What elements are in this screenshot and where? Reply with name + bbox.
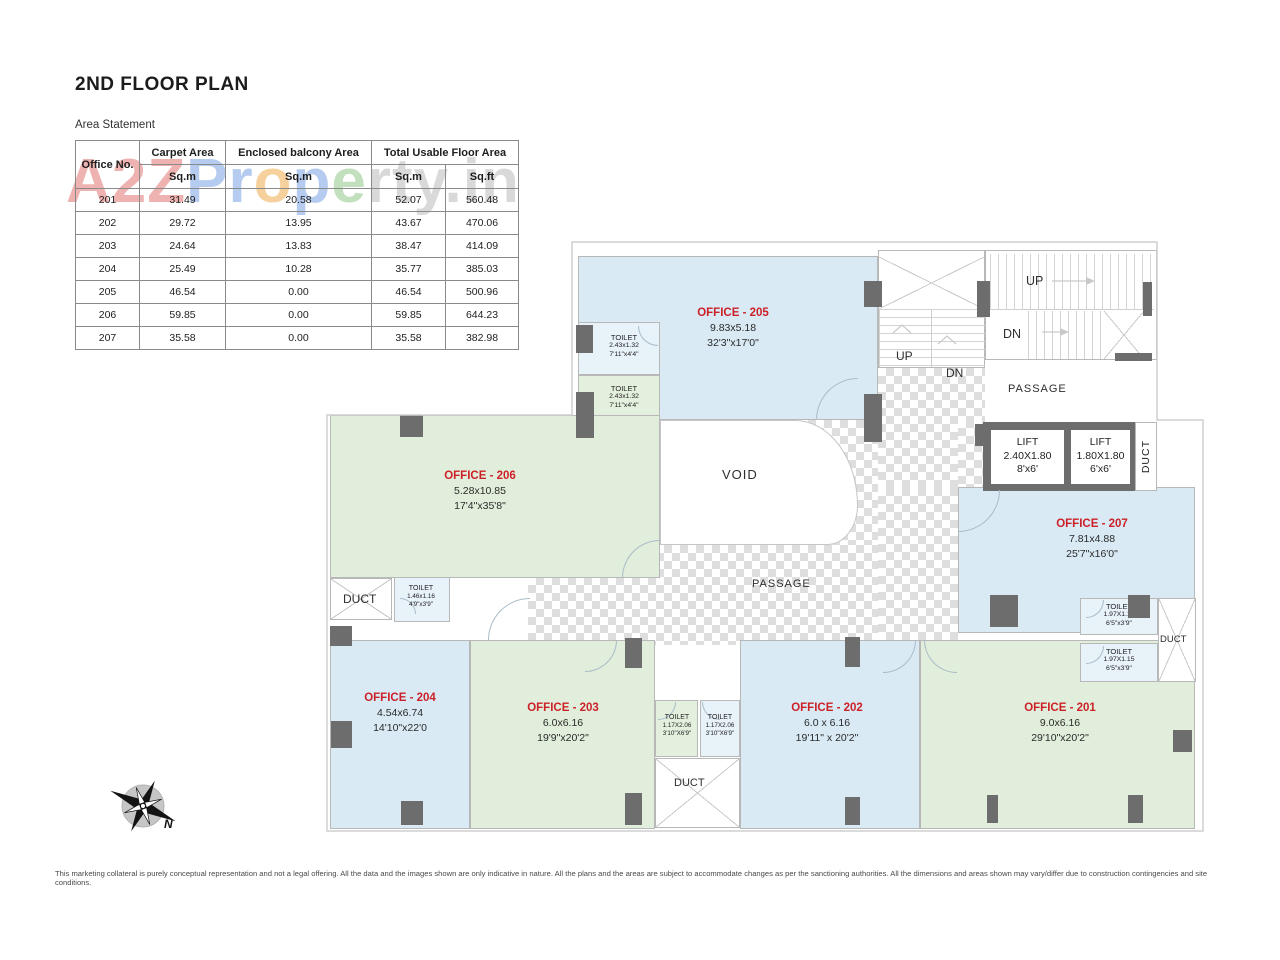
wall-column (975, 424, 991, 446)
wall-column (625, 793, 642, 825)
wall-column (1115, 353, 1152, 361)
toilet-203-label: TOILET 1.17X2.06 3'10"X6'9" (663, 714, 692, 737)
wall-column (845, 637, 860, 667)
disclaimer-text: This marketing collateral is purely conc… (55, 869, 1227, 887)
wall-column (400, 415, 423, 437)
wall-column (845, 797, 860, 825)
office-207-label: OFFICE - 207 7.81x4.88 25'7"x16'0" (1007, 516, 1177, 562)
toilet-202-label: TOILET 1.17X2.06 3'10"X6'9" (706, 714, 735, 737)
duct-center (655, 758, 740, 828)
wall-column (990, 595, 1018, 627)
passage-top-label: PASSAGE (1008, 383, 1067, 395)
wall-column (1128, 795, 1143, 823)
table-row: 20425.4910.2835.77385.03 (76, 258, 519, 281)
duct-right-label: DUCT (1160, 634, 1186, 645)
table-row: 20735.580.0035.58382.98 (76, 327, 519, 350)
wall-column (977, 281, 990, 317)
wall-column (576, 325, 593, 353)
floor-plan-page: A2ZProperty.in 2ND FLOOR PLAN Area State… (0, 0, 1280, 960)
table-row: 20324.6413.8338.47414.09 (76, 235, 519, 258)
unit-header-sqm: Sq.m (140, 165, 226, 189)
wall-column (625, 638, 642, 668)
duct-center-label: DUCT (674, 777, 705, 789)
page-title: 2ND FLOOR PLAN (75, 74, 249, 96)
door-arc (488, 598, 530, 640)
lift-2: LIFT 1.80X1.80 6'x6' (1071, 430, 1130, 484)
wall-column (864, 394, 882, 442)
table-row: 20546.540.0046.54500.96 (76, 281, 519, 304)
toilet-207b-label: TOILET 1.97X1.15 6'5"x3'9" (1104, 647, 1135, 673)
wall-column (1128, 595, 1150, 618)
toilet-205a-label: TOILET 2.43x1.32 7'11"x4'4" (609, 333, 639, 359)
office-202-label: OFFICE - 202 6.0 x 6.16 19'11" x 20'2" (742, 700, 912, 746)
void-label: VOID (722, 467, 758, 482)
stair-up-label: UP (896, 349, 913, 363)
wall-column (330, 626, 352, 646)
col-header-balcony: Enclosed balcony Area (226, 141, 372, 165)
wall-column (987, 795, 998, 823)
staircase-right (985, 250, 1157, 360)
wall-column (864, 281, 882, 307)
office-205-label: OFFICE - 205 9.83x5.18 32'3"x17'0" (648, 305, 818, 351)
toilet-206-label: TOILET 1.46x1.16 4'9"x3'9" (407, 585, 435, 608)
col-header-office: Office No. (76, 141, 140, 189)
office-203-label: OFFICE - 203 6.0x6.16 19'9"x20'2" (478, 700, 648, 746)
wall-column (331, 721, 352, 748)
staircase-left (878, 250, 985, 368)
stair-up-label: UP (1026, 274, 1043, 288)
unit-header-sqft: Sq.ft (446, 165, 519, 189)
col-header-total: Total Usable Floor Area (372, 141, 519, 165)
toilet-205b-label: TOILET 2.43x1.32 7'11"x4'4" (609, 384, 639, 410)
stair-treads (990, 254, 1154, 310)
table-row: 20659.850.0059.85644.23 (76, 304, 519, 327)
stair-divider (931, 309, 932, 367)
unit-header-sqm: Sq.m (372, 165, 446, 189)
north-label: N (164, 817, 173, 831)
office-201-label: OFFICE - 201 9.0x6.16 29'10"x20'2" (975, 700, 1145, 746)
wall-column (576, 392, 594, 438)
table-row: 20229.7213.9543.67470.06 (76, 212, 519, 235)
lift-1: LIFT 2.40X1.80 8'x6' (991, 430, 1064, 484)
stair-dn-label: DN (946, 366, 963, 380)
unit-header-sqm: Sq.m (226, 165, 372, 189)
wall-column (1173, 730, 1192, 752)
area-statement-table: Office No. Carpet Area Enclosed balcony … (75, 140, 519, 350)
stair-treads (879, 309, 985, 367)
stair-landing (879, 257, 984, 309)
wall-column (401, 801, 423, 825)
passage-floor (878, 488, 958, 645)
compass-icon (99, 765, 188, 846)
stair-dn-label: DN (1003, 327, 1021, 341)
passage-mid-label: PASSAGE (752, 578, 811, 590)
office-206-label: OFFICE - 206 5.28x10.85 17'4"x35'8" (395, 468, 565, 514)
area-statement-label: Area Statement (75, 119, 155, 131)
wall-column (1143, 282, 1152, 316)
table-row: 20131.4920.5852.07560.48 (76, 189, 519, 212)
col-header-carpet: Carpet Area (140, 141, 226, 165)
stair-treads (1028, 311, 1104, 359)
duct-left-label: DUCT (343, 592, 376, 606)
duct-lift-side: DUCT (1135, 422, 1157, 491)
stair-landing (1104, 311, 1144, 359)
void-area (660, 420, 858, 545)
